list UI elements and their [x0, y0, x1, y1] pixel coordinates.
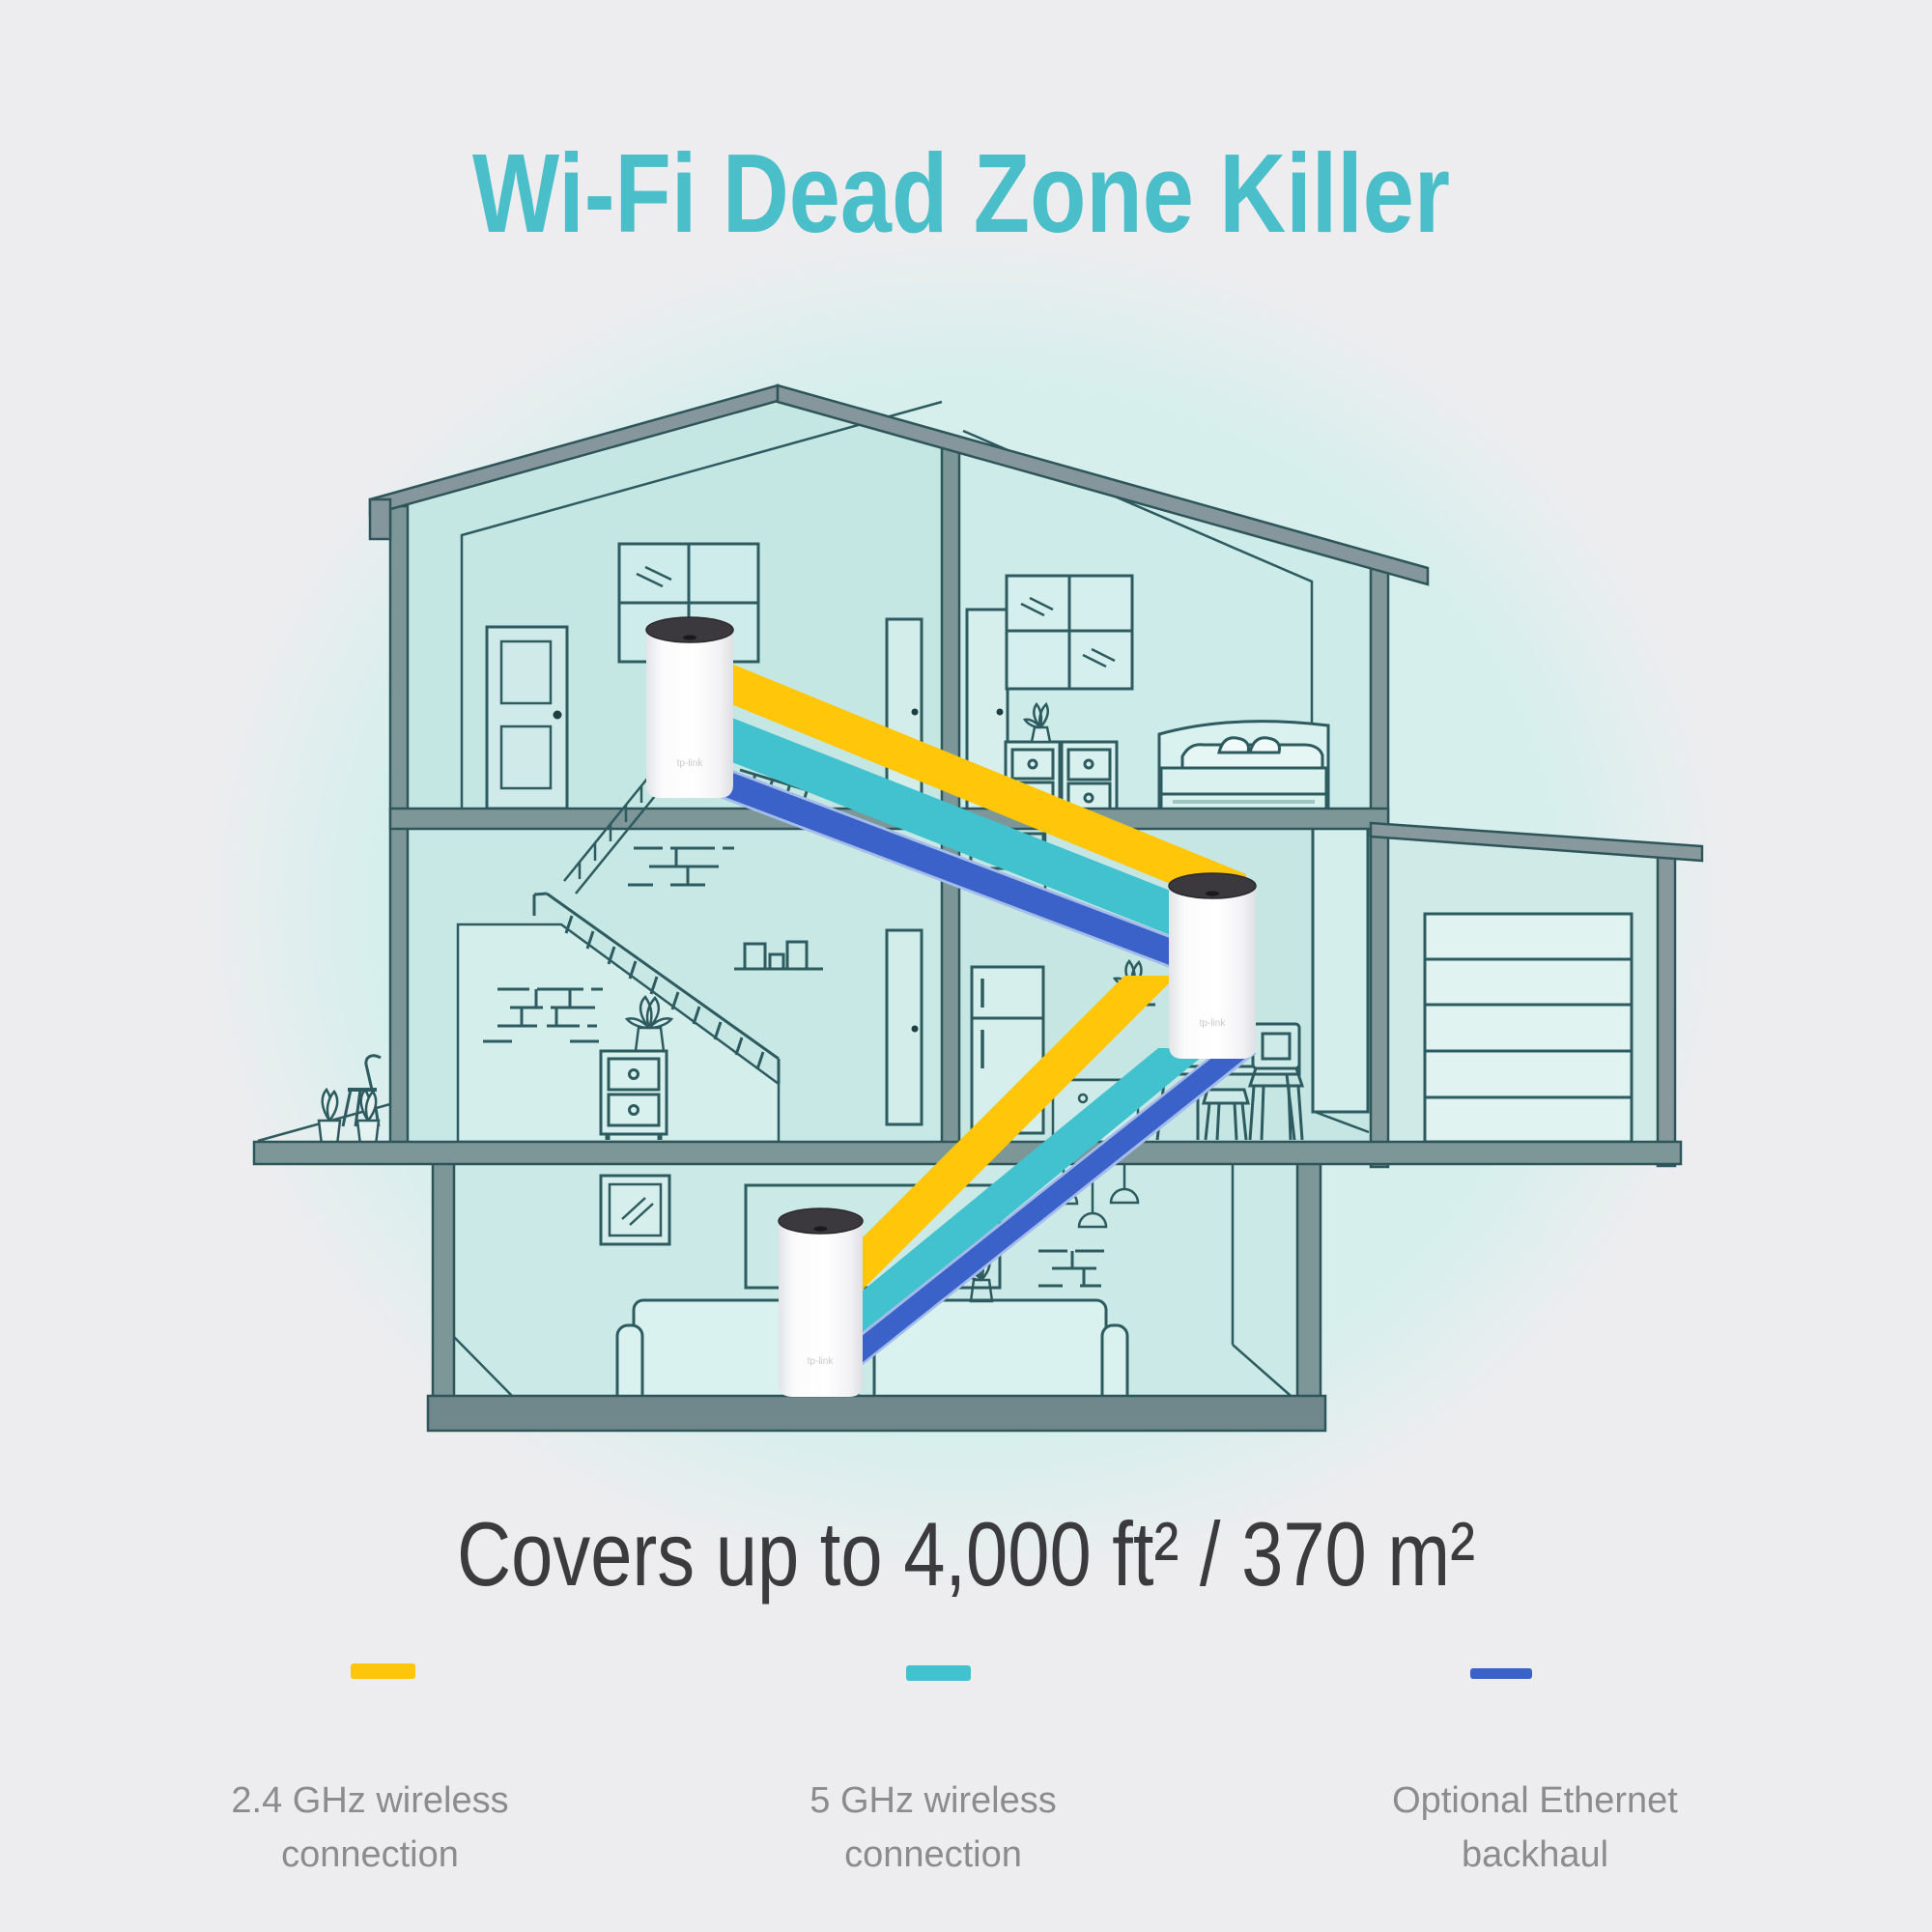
svg-text:2.4 GHz wireless: 2.4 GHz wireless: [231, 1780, 508, 1821]
svg-text:backhaul: backhaul: [1462, 1834, 1608, 1875]
svg-text:Covers up to 4,000 ft² / 370 m: Covers up to 4,000 ft² / 370 m²: [457, 1503, 1475, 1605]
svg-text:Optional Ethernet: Optional Ethernet: [1392, 1780, 1678, 1821]
svg-text:connection: connection: [844, 1834, 1022, 1875]
svg-text:tp-link: tp-link: [1200, 1018, 1227, 1029]
svg-text:connection: connection: [281, 1834, 459, 1875]
svg-text:5 GHz wireless: 5 GHz wireless: [810, 1780, 1057, 1821]
svg-text:tp-link: tp-link: [677, 758, 704, 769]
svg-text:Wi-Fi Dead Zone Killer: Wi-Fi Dead Zone Killer: [472, 130, 1450, 256]
svg-text:tp-link: tp-link: [808, 1356, 835, 1367]
